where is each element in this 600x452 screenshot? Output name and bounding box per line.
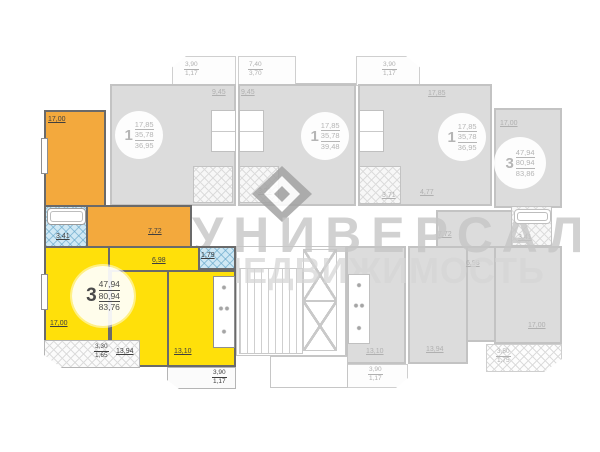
kitchen-unit-icon: [213, 276, 235, 348]
kitchen-area-label: 9,45: [212, 89, 226, 97]
room-area-label: 17,00: [500, 120, 518, 128]
bath-area-label: 3,41: [56, 233, 70, 241]
corridor-area-label: 6,98: [152, 257, 166, 265]
hall[interactable]: [86, 205, 192, 248]
kitchen-unit-icon: [359, 110, 384, 152]
kitchen-area-label: 9,45: [241, 89, 255, 97]
bathtub-icon: [47, 208, 86, 225]
room-area-label: 17,00: [528, 322, 546, 330]
room-area-label: 17,85: [428, 90, 446, 98]
hall-area-label: 7,72: [148, 228, 162, 236]
room-area-label: 13,94: [426, 346, 444, 354]
apartment-badge[interactable]: 1 17,85 35,78 36,95: [115, 111, 163, 159]
kitchen-unit-icon: [348, 274, 370, 344]
window-icon: [41, 274, 48, 310]
balcony: [172, 56, 236, 86]
room-area-label: 17,00: [50, 320, 68, 328]
watermark-line2: НЕДВИЖИМОСТЬ: [216, 250, 545, 292]
floor-plan: 3,90 1,17 9,45 1 17,85 35,78 36,95 7,40 …: [0, 0, 600, 452]
bath-area-label: 3,71: [382, 192, 396, 200]
bathroom-hatch: [193, 166, 233, 203]
room-area-label: 17,00: [48, 116, 66, 124]
wc-area-label: 1,79: [201, 252, 215, 260]
balcony-area-label: 3,50 1,75: [496, 348, 511, 365]
kitchen-area-label: 13,10: [174, 348, 192, 356]
apartment-badge[interactable]: 3 47,94 80,94 83,76: [72, 266, 134, 326]
balcony-area-label: 3,30 1,65: [94, 343, 109, 360]
balcony-area-label: 3,90 1,17: [368, 366, 383, 383]
kitchen-area-label: 13,10: [366, 348, 384, 356]
balcony-area-label: 3,90 1,17: [382, 61, 397, 78]
room-top[interactable]: [44, 110, 106, 207]
balcony-area-label: 7,40 3,70: [248, 61, 263, 78]
balcony: [238, 56, 296, 86]
elevator-shaft-2: [303, 301, 337, 351]
kitchen-unit-icon: [211, 110, 236, 152]
apartment-badge[interactable]: 1 17,85 35,78 39,48: [301, 112, 349, 160]
apartment-badge[interactable]: 1 17,85 35,78 36,95: [438, 113, 486, 161]
balcony-area-label: 3,90 1,17: [212, 369, 227, 386]
balcony-area-label: 3,90 1,17: [184, 61, 199, 78]
hall-area-label: 4,77: [420, 189, 434, 197]
entrance-porch: [270, 356, 348, 388]
bathtub-icon: [514, 209, 551, 224]
room-area-label: 13,94: [116, 348, 134, 356]
window-icon: [41, 138, 48, 174]
apartment-badge[interactable]: 3 47,94 80,94 83,86: [494, 137, 546, 189]
kitchen-unit-icon: [239, 110, 264, 152]
